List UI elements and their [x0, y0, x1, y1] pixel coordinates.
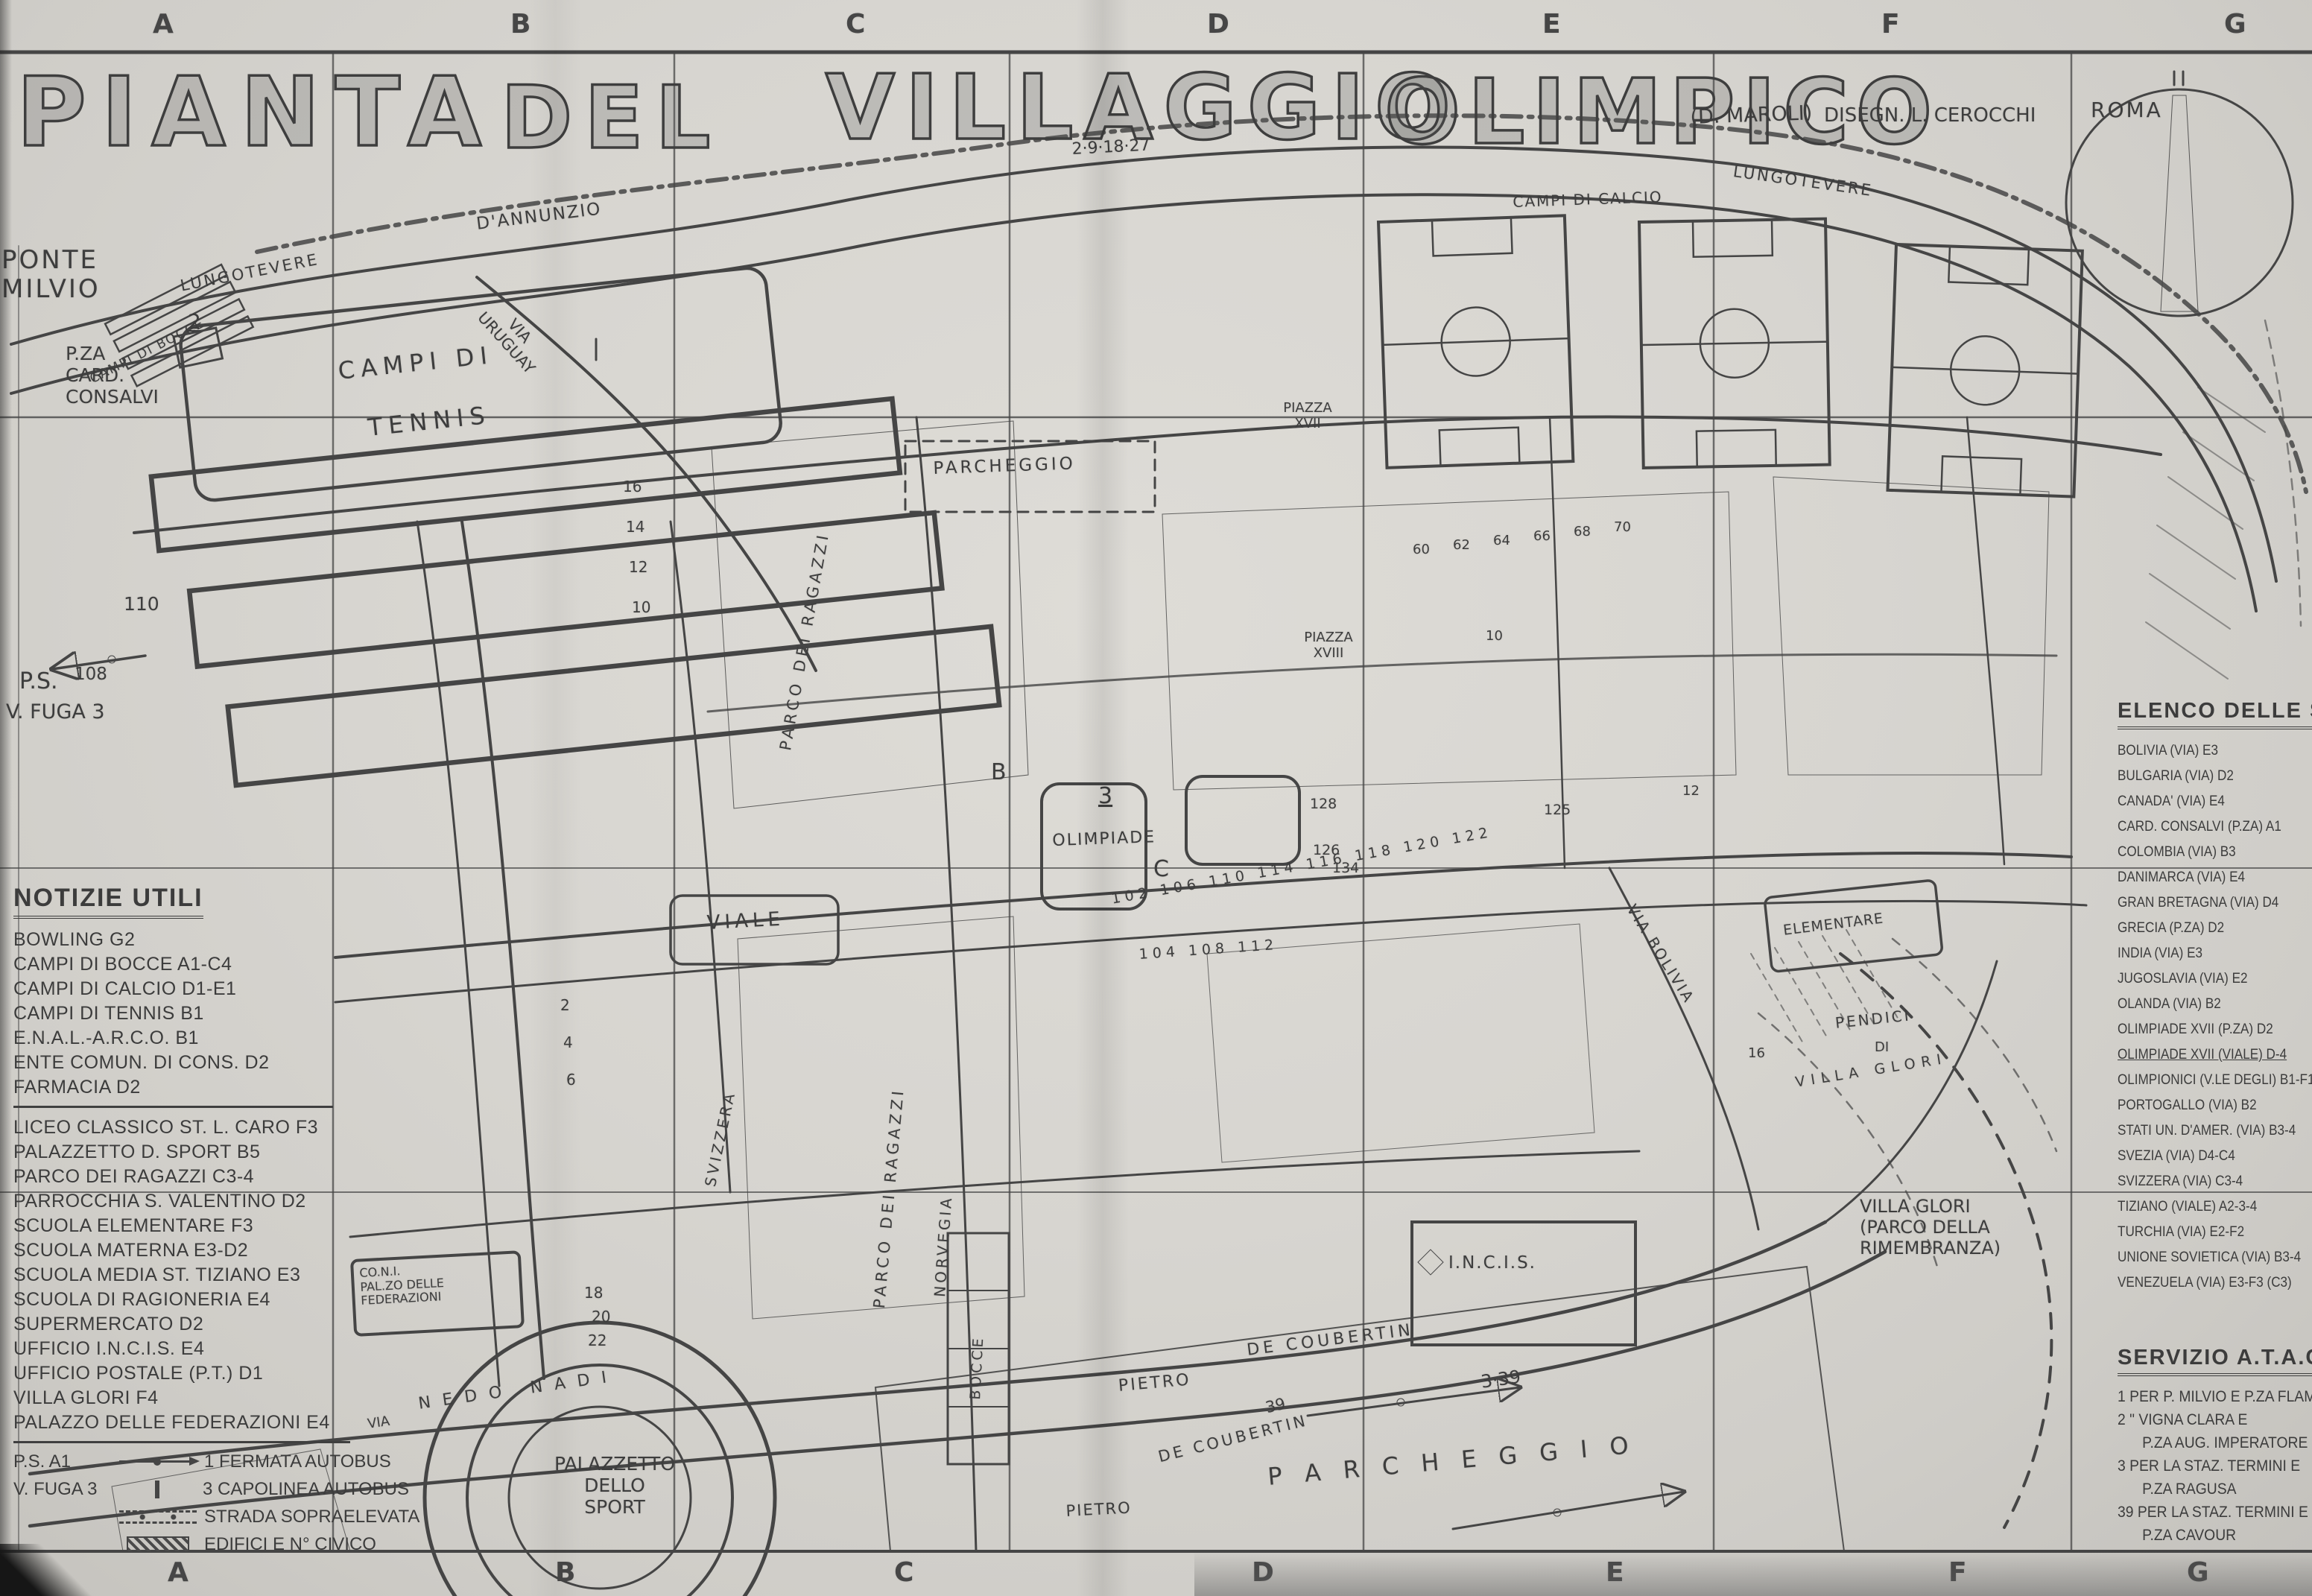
map-label: CAMPI DI CALCIO [1513, 189, 1663, 211]
grid-letter-bottom: C [894, 1557, 913, 1589]
bus-stop-symbol-icon [119, 1460, 197, 1463]
servizio-atac-panel: SERVIZIO A.T.A.C. 1 PER P. MILVIO E P.ZA… [2118, 1346, 2311, 1547]
panel-item: CARD. CONSALVI (P.ZA) A1 [2118, 814, 2292, 840]
panel-item: OLANDA (VIA) B2 [2118, 992, 2292, 1017]
panel-item: SVEZIA (VIA) D4-C4 [2118, 1144, 2292, 1169]
panel-item: SVIZZERA (VIA) C3-4 [2118, 1169, 2292, 1194]
panel-item: SUPERMERCATO D2 [13, 1312, 350, 1337]
map-label: 70 [1614, 520, 1631, 536]
map-label: PIAZZA XVIII [1288, 630, 1369, 662]
panel-item: 3 PER LA STAZ. TERMINI E [2118, 1454, 2296, 1478]
map-label: 22 [588, 1332, 606, 1349]
label-parcheggio: P A R C H E G G I O [1267, 1431, 1637, 1491]
label-parco-dei-ragazzi: PARCO DEI RAGAZZI [776, 531, 833, 752]
panel-item: 39 PER LA STAZ. TERMINI E [2118, 1501, 2296, 1524]
map-label: 10 [1486, 629, 1503, 645]
panel-item: FARMACIA D2 [13, 1075, 350, 1100]
map-label: 64 [1493, 533, 1510, 549]
photo-corner-shadow [0, 1544, 97, 1596]
legend-label: EDIFICI E N° CIVICO [204, 1534, 376, 1555]
panel-item: STATI UN. D'AMER. (VIA) B3-4 [2118, 1118, 2292, 1144]
map-city: ROMA [2091, 98, 2163, 122]
panel-item: COLOMBIA (VIA) B3 [2118, 840, 2292, 865]
elenco-strade-title: ELENCO DELLE STRADE [2118, 699, 2312, 729]
panel-item: GRAN BRETAGNA (VIA) D4 [2118, 890, 2292, 916]
map-credit: DISEGN. L. CEROCCHI [1824, 104, 2036, 127]
map-label: LUNGOTEVERE [1732, 162, 1875, 200]
panel-item: JUGOSLAVIA (VIA) E2 [2118, 966, 2292, 992]
panel-item: 1 PER P. MILVIO E P.ZA FLAM. [2118, 1385, 2296, 1408]
map-label: VILLA GLORI [1794, 1051, 1948, 1091]
grid-letter-top: A [153, 9, 174, 40]
panel-item: PORTOGALLO (VIA) B2 [2118, 1093, 2292, 1118]
paper-fold-shadow [1077, 0, 1129, 1596]
building-hatch-symbol-icon [127, 1536, 189, 1553]
panel-item: LICEO CLASSICO ST. L. CARO F3 [13, 1115, 350, 1140]
map-label: 110 [124, 593, 159, 615]
map-label: B [991, 760, 1007, 786]
map-label: TENNIS [367, 402, 492, 442]
map-label: SVIZZERA [702, 1089, 739, 1188]
panel-item: SCUOLA DI RAGIONERIA E4 [13, 1288, 350, 1312]
label-incis: I.N.C.I.S. [1448, 1253, 1536, 1273]
scanned-map-photo: PIANTADELVILLAGGIOOLIMPICO(D. MAROLI)DIS… [0, 0, 2312, 1596]
panel-item: TIZIANO (VIALE) A2-3-4 [2118, 1194, 2292, 1220]
map-label: 68 [1574, 525, 1591, 540]
panel-item: DANIMARCA (VIA) E4 [2118, 865, 2292, 890]
legend-label: 3 CAPOLINEA AUTOBUS [203, 1479, 409, 1500]
elenco-strade-list: BOLIVIA (VIA) E3BULGARIA (VIA) D2CANADA'… [2118, 738, 2311, 1296]
panel-item: INDIA (VIA) E3 [2118, 941, 2292, 966]
map-label: 12 [629, 559, 647, 576]
map-label: 62 [1453, 538, 1470, 554]
map-label: NEDO NADI [417, 1367, 619, 1413]
map-title-word: PIANTA [16, 58, 496, 168]
panel-item: UFFICIO POSTALE (P.T.) D1 [13, 1361, 350, 1386]
map-label: CAMPI DI [337, 341, 495, 385]
panel-item: SCUOLA ELEMENTARE F3 [13, 1214, 350, 1238]
panel-item: BOWLING G2 [13, 928, 350, 952]
grid-letter-top: D [1207, 9, 1229, 40]
panel-item: VILLA GLORI F4 [13, 1386, 350, 1410]
panel-item: PALAZZO DELLE FEDERAZIONI E4 [13, 1410, 350, 1435]
map-label: C [1153, 857, 1169, 883]
panel-item: P.ZA AUG. IMPERATORE [2118, 1431, 2296, 1454]
map-label: 18 [584, 1285, 603, 1302]
notizie-utili-panel: NOTIZIE UTILI BOWLING G2CAMPI DI BOCCE A… [13, 884, 350, 1558]
legend-row-bus-stop: P.S. A1 1 FERMATA AUTOBUS [13, 1448, 350, 1475]
panel-item: GRECIA (P.ZA) D2 [2118, 916, 2292, 941]
panel-item: OLIMPIADE XVII (VIALE) D-4 [2118, 1042, 2292, 1068]
map-label: V. FUGA 3 [6, 700, 105, 723]
map-label: 125 [1544, 802, 1571, 818]
map-label: PIAZZA XVII [1267, 401, 1349, 432]
grid-letter-top: G [2224, 9, 2246, 40]
map-label: DE COUBERTIN [1246, 1320, 1415, 1360]
map-label: 104 108 112 [1138, 937, 1279, 963]
map-label: VIA BOLIVIA [1623, 902, 1697, 1007]
photo-edge-shadow [1194, 1551, 2312, 1596]
photo-edge-shadow [0, 0, 12, 1596]
map-label: 60 [1413, 542, 1430, 558]
grid-letter-top: B [510, 9, 531, 40]
servizio-atac-title: SERVIZIO A.T.A.C. [2118, 1346, 2312, 1376]
map-label: 20 [592, 1308, 610, 1326]
map-label: DE COUBERTIN [1156, 1411, 1310, 1466]
panel-item: 2 " VIGNA CLARA E [2118, 1408, 2296, 1431]
grid-letter-top: C [846, 9, 865, 40]
legend-prefix: V. FUGA 3 [13, 1479, 112, 1500]
map-label: 16 [1748, 1046, 1765, 1062]
map-label: 14 [626, 519, 644, 536]
notizie-utili-list-1: BOWLING G2CAMPI DI BOCCE A1-C4CAMPI DI C… [13, 928, 350, 1100]
elenco-strade-panel: ELENCO DELLE STRADE BOLIVIA (VIA) E3BULG… [2118, 699, 2311, 1296]
panel-item: OLIMPIONICI (V.LE DEGLI) B1-F1 [2118, 1068, 2292, 1093]
map-label: PENDICI [1834, 1007, 1912, 1032]
panel-item: SCUOLA MEDIA ST. TIZIANO E3 [13, 1263, 350, 1288]
legend-row-bus-terminus: V. FUGA 3 3 CAPOLINEA AUTOBUS [13, 1475, 350, 1503]
label-villa-glori: VILLA GLORI (PARCO DELLA RIMEMBRANZA) [1860, 1197, 2001, 1258]
map-label: 66 [1533, 529, 1551, 545]
map-label: 12 [1682, 784, 1700, 799]
panel-item: CAMPI DI TENNIS B1 [13, 1001, 350, 1026]
map-label: LUNGOTEVERE [179, 250, 320, 295]
panel-item: UFFICIO I.N.C.I.S. E4 [13, 1337, 350, 1361]
panel-item: ENTE COMUN. DI CONS. D2 [13, 1051, 350, 1075]
panel-item: PARCO DEI RAGAZZI C3-4 [13, 1165, 350, 1189]
label-parco-dei-ragazzi: PARCO DEI RAGAZZI [870, 1086, 908, 1309]
panel-item: SCUOLA MATERNA E3-D2 [13, 1238, 350, 1263]
map-label: 108 [75, 665, 107, 685]
map-label: 16 [623, 478, 642, 495]
paper-fold-shadow [529, 0, 581, 1596]
panel-item: CAMPI DI BOCCE A1-C4 [13, 952, 350, 977]
panel-item: OLIMPIADE XVII (P.ZA) D2 [2118, 1017, 2292, 1042]
panel-item: CANADA' (VIA) E4 [2118, 789, 2292, 814]
panel-item: PARROCCHIA S. VALENTINO D2 [13, 1189, 350, 1214]
map-label: CO.N.I. PAL.ZO DELLE FEDERAZIONI [359, 1258, 518, 1308]
legend-label: 1 FERMATA AUTOBUS [204, 1451, 391, 1472]
map-label: 126 [1313, 842, 1340, 858]
map-label: 39 [1264, 1395, 1288, 1417]
map-label: 10 [632, 599, 650, 616]
map-label: VIALE [706, 908, 785, 935]
bus-terminus-symbol-icon [155, 1481, 159, 1498]
map-label: ELEMENTARE [1782, 910, 1884, 938]
map-label: 3·39 [1480, 1367, 1522, 1393]
map-label: 134 [1332, 860, 1359, 876]
label-ponte-milvio: PONTE MILVIO [1, 246, 101, 305]
map-key: P.S. A1 1 FERMATA AUTOBUS V. FUGA 3 3 CA… [13, 1441, 350, 1558]
panel-item: TURCHIA (VIA) E2-F2 [2118, 1220, 2292, 1245]
legend-label: STRADA SOPRAELEVATA [204, 1507, 419, 1527]
map-label: P.S. [19, 669, 58, 695]
servizio-atac-list: 1 PER P. MILVIO E P.ZA FLAM.2 " VIGNA CL… [2118, 1385, 2311, 1547]
legend-prefix: P.S. A1 [13, 1451, 112, 1472]
panel-item: CAMPI DI CALCIO D1-E1 [13, 977, 350, 1001]
notizie-utili-title: NOTIZIE UTILI [13, 884, 203, 919]
grid-letter-bottom: A [168, 1557, 189, 1589]
map-label: NORVEGIA [931, 1194, 956, 1297]
legend-row-elevated-road: STRADA SOPRAELEVATA [13, 1503, 350, 1530]
grid-letter-top: F [1881, 9, 1900, 40]
panel-item: P.ZA RAGUSA [2118, 1478, 2296, 1501]
map-label: VIA [367, 1414, 391, 1433]
map-label: 128 [1310, 796, 1337, 812]
panel-item: E.N.A.L.-A.R.C.O. B1 [13, 1026, 350, 1051]
panel-item: BOLIVIA (VIA) E3 [2118, 738, 2292, 764]
panel-item: PALAZZETTO D. SPORT B5 [13, 1140, 350, 1165]
grid-letter-top: E [1542, 9, 1561, 40]
panel-item: UNIONE SOVIETICA (VIA) B3-4 [2118, 1245, 2292, 1270]
panel-divider [13, 1106, 333, 1108]
map-label: DI [1875, 1040, 1889, 1056]
notizie-utili-list-2: LICEO CLASSICO ST. L. CARO F3PALAZZETTO … [13, 1115, 350, 1435]
panel-item: P.ZA CAVOUR [2118, 1524, 2296, 1547]
elevated-road-symbol-icon [119, 1510, 197, 1524]
map-subtitle: (D. MAROLI) [1690, 101, 1813, 129]
panel-item: BULGARIA (VIA) D2 [2118, 764, 2292, 789]
map-label: BOCCE [967, 1335, 987, 1400]
panel-item: VENEZUELA (VIA) E3-F3 (C3) [2118, 1270, 2292, 1296]
map-label: PARCHEGGIO [933, 454, 1076, 478]
